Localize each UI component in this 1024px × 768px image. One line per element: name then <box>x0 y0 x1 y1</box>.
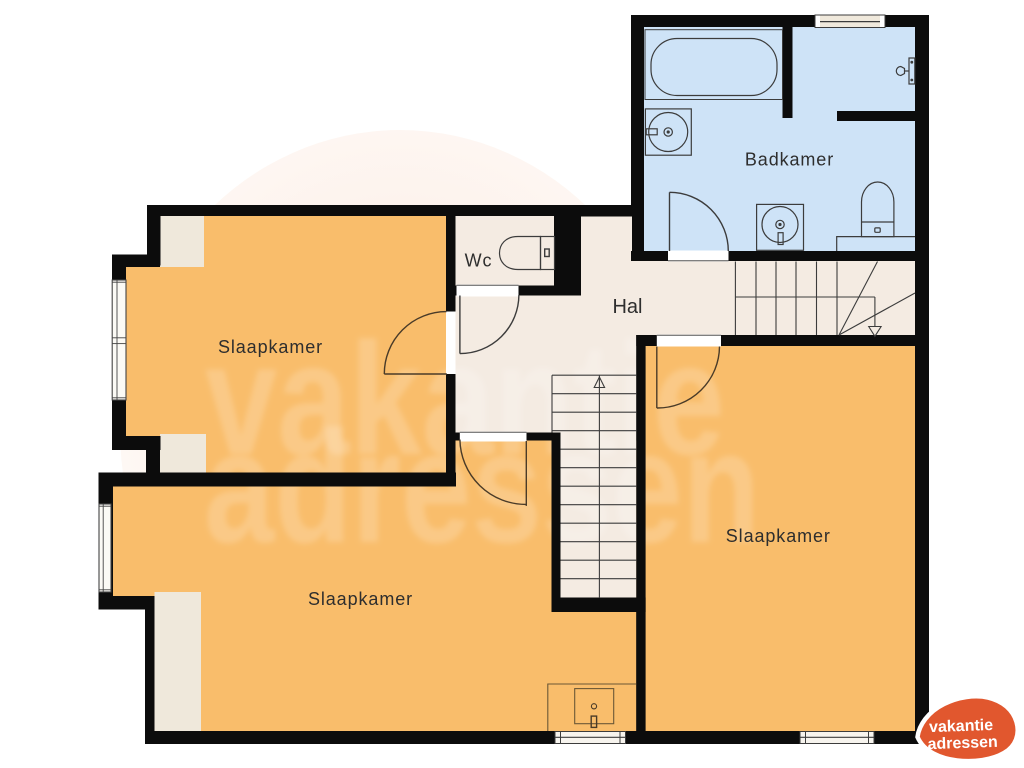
svg-text:Slaapkamer: Slaapkamer <box>308 589 413 609</box>
svg-text:Wc: Wc <box>465 251 493 271</box>
svg-text:Slaapkamer: Slaapkamer <box>726 526 831 546</box>
svg-text:adressen: adressen <box>927 734 998 753</box>
svg-text:Badkamer: Badkamer <box>745 150 834 170</box>
svg-text:Hal: Hal <box>612 296 642 318</box>
svg-text:Slaapkamer: Slaapkamer <box>218 337 323 357</box>
